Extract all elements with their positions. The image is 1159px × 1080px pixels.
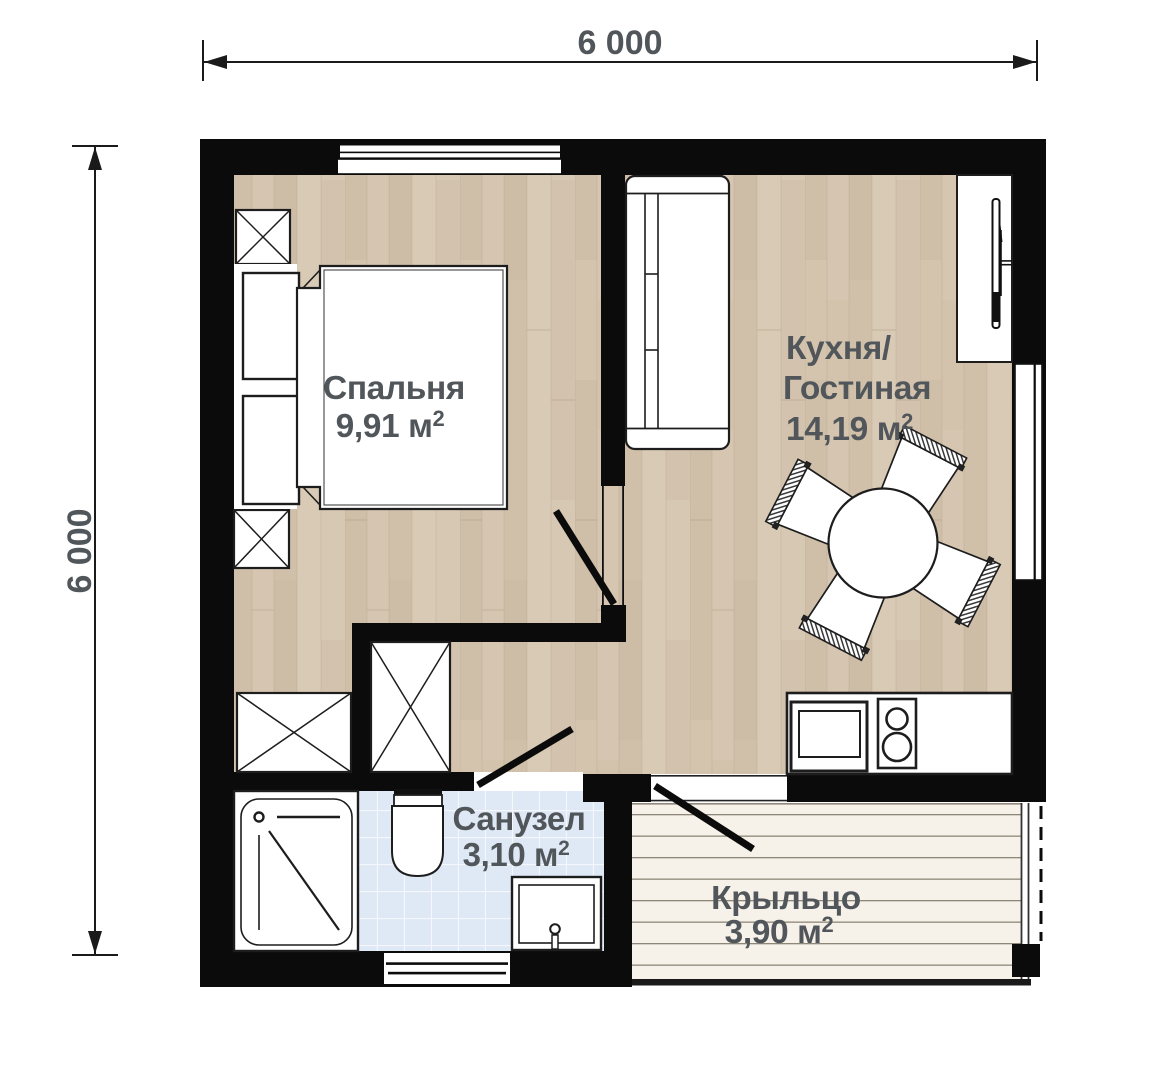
svg-text:Крыльцо: Крыльцо [711,880,861,917]
svg-text:3,90 м2: 3,90 м2 [725,912,834,951]
svg-text:14,19 м2: 14,19 м2 [786,409,913,448]
svg-text:6 000: 6 000 [61,508,99,593]
svg-text:6 000: 6 000 [577,24,662,62]
svg-text:Санузел: Санузел [453,800,586,837]
svg-text:3,10 м2: 3,10 м2 [463,836,570,873]
svg-text:9,91 м2: 9,91 м2 [336,406,445,445]
svg-text:Кухня/: Кухня/ [786,330,891,367]
svg-text:Спальня: Спальня [323,370,465,407]
svg-text:Гостиная: Гостиная [783,370,931,407]
